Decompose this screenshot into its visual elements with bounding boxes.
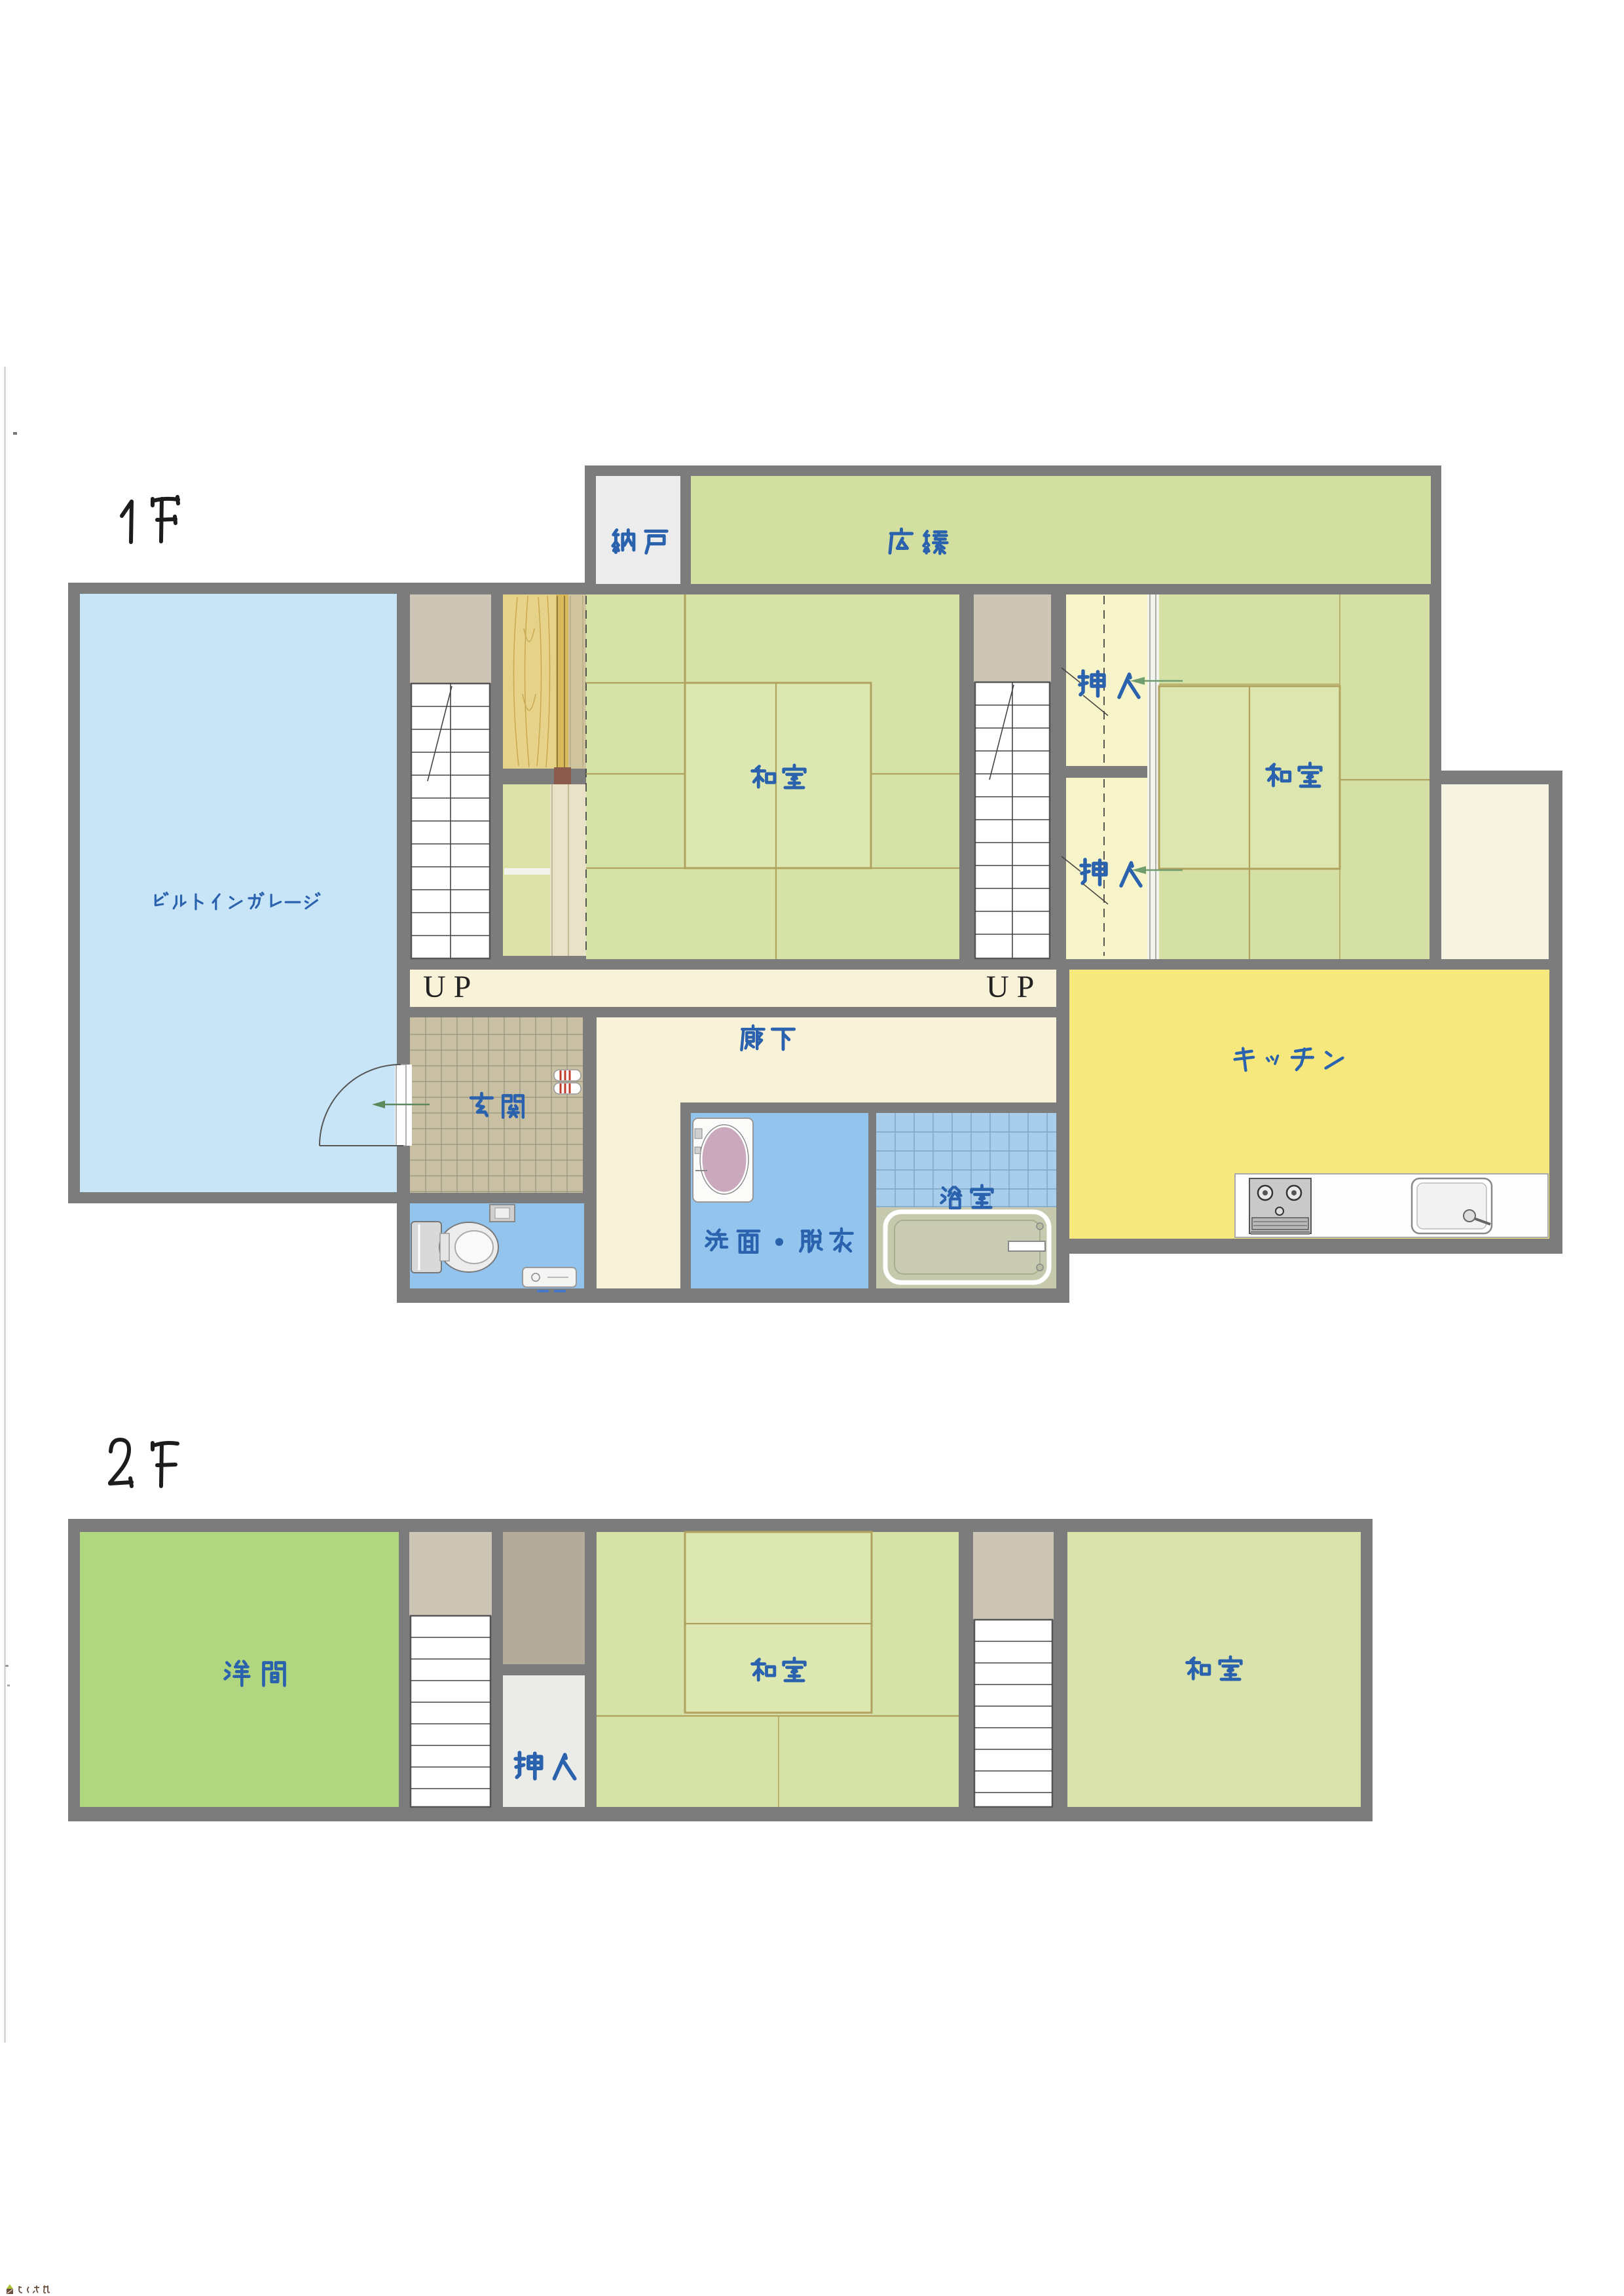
svg-text:UP: UP — [986, 970, 1042, 1004]
svg-text:UP: UP — [423, 970, 479, 1004]
